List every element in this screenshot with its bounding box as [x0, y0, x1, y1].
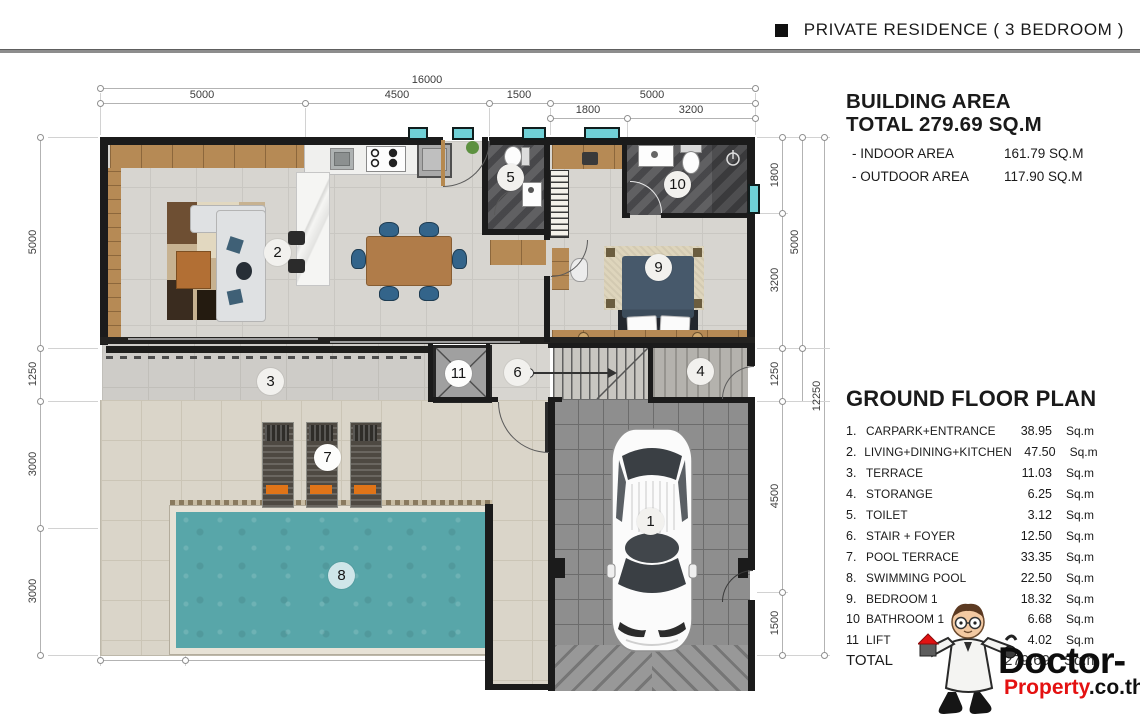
dim-tick: [182, 657, 189, 664]
dim-label: 5000: [27, 230, 39, 254]
dining-chair: [379, 286, 399, 301]
coffee-table: [176, 251, 211, 289]
stair-direction-arrowhead-icon: [608, 368, 617, 378]
entry-shoe-cabinet: [490, 240, 546, 265]
ext-line: [757, 137, 830, 138]
entry-plant-icon: [466, 141, 479, 154]
brand-wordmark-bottom: Property.co.th: [1004, 676, 1140, 700]
sliding-door-track-1: [128, 338, 318, 340]
room-badge-carpark: 1: [637, 508, 664, 535]
dining-chair: [379, 222, 399, 237]
dim-line: [40, 137, 41, 655]
room-badge-storage: 4: [687, 358, 714, 385]
bathroom-window-icon: [584, 127, 620, 140]
living-cabinet-row: [110, 143, 304, 168]
dim-tick: [302, 100, 309, 107]
dim-tick: [752, 115, 759, 122]
dim-tick: [821, 134, 828, 141]
bedroom-window-icon: [748, 184, 760, 214]
dim-line: [802, 137, 803, 401]
dim-tick: [37, 134, 44, 141]
room-badge-lift: 11: [445, 360, 472, 387]
legend-row: 4. STORANGE 6.25 Sq.m: [846, 484, 1106, 505]
dim-label: 12250: [811, 381, 823, 412]
dim-tick: [779, 652, 786, 659]
wall-storage-left: [648, 348, 653, 399]
legend-row: 3. TERRACE 11.03 Sq.m: [846, 463, 1106, 484]
dim-label: 1800: [769, 163, 781, 187]
ext-line: [48, 528, 98, 529]
dim-label: 1500: [769, 611, 781, 635]
corridor-window-icon: [522, 127, 546, 140]
sheet-title: PRIVATE RESIDENCE ( 3 BEDROOM ): [804, 20, 1124, 40]
bath-wc-icon: [682, 151, 700, 174]
building-area-title: BUILDING AREA: [846, 90, 1011, 114]
kitchen-sink-icon: [330, 148, 354, 170]
room-badge-toilet: 5: [497, 164, 524, 191]
dim-line: [824, 137, 825, 655]
wall-pool-right: [485, 504, 493, 688]
room-badge-bathroom: 10: [664, 171, 691, 198]
dim-tick: [37, 525, 44, 532]
dim-tick: [752, 85, 759, 92]
wall-left: [100, 137, 108, 345]
stair-direction-line: [530, 372, 610, 374]
corridor-stand: [582, 152, 598, 165]
dim-label: 3000: [27, 579, 39, 603]
room-badge-terrace: 3: [257, 368, 284, 395]
dim-tick: [486, 100, 493, 107]
indoor-area-row: - INDOOR AREA 161.79 SQ.M: [852, 146, 1140, 161]
ext-line: [489, 108, 490, 136]
dim-tick: [799, 134, 806, 141]
sheet-header: PRIVATE RESIDENCE ( 3 BEDROOM ): [775, 20, 1124, 40]
ground-floor-plan-title: GROUND FLOOR PLAN: [846, 386, 1096, 412]
dim-label: 3000: [27, 452, 39, 476]
dim-label: 1250: [27, 362, 39, 386]
ext-line: [305, 108, 306, 140]
terrace-planter: [106, 346, 432, 353]
ext-line: [627, 122, 628, 137]
ext-line: [48, 401, 98, 402]
room-badge-pool-terrace: 7: [314, 444, 341, 471]
legend-row: 5. TOILET 3.12 Sq.m: [846, 505, 1106, 526]
dining-table: [366, 236, 452, 286]
pilaster-left: [555, 558, 565, 578]
toilet-basin-icon: [522, 182, 542, 207]
dim-tick: [752, 100, 759, 107]
dining-chair: [351, 249, 366, 269]
dim-tick: [547, 100, 554, 107]
kitchen-window-2-icon: [452, 127, 474, 140]
dim-tick: [624, 115, 631, 122]
sliding-door-track-2: [330, 341, 520, 343]
wall-carpark-left: [548, 399, 555, 691]
dim-tick: [779, 345, 786, 352]
wall-corridor-left-upper: [544, 137, 550, 240]
foyer-exit-door-leaf: [545, 402, 548, 452]
bar-stool: [288, 259, 305, 273]
wall-under-lift: [428, 397, 498, 402]
outdoor-area-row: - OUTDOOR AREA 117.90 SQ.M: [852, 169, 1140, 184]
dining-chair: [452, 249, 467, 269]
dim-tick: [779, 589, 786, 596]
wardrobe-hatch: [550, 170, 569, 238]
wall-right-upper: [747, 137, 755, 366]
legend-row: 1. CARPARK+ENTRANCE 38.95 Sq.m: [846, 421, 1106, 442]
dim-tick: [779, 134, 786, 141]
legend-row: 2. LIVING+DINING+KITCHEN 47.50 Sq.m: [846, 442, 1106, 463]
building-area-total: TOTAL 279.69 SQ.M: [846, 113, 1042, 137]
room-badge-foyer: 6: [504, 359, 531, 386]
room-badge-living: 2: [264, 239, 291, 266]
header-bullet-icon: [775, 24, 788, 37]
wall-carpark-right-a: [748, 399, 755, 570]
sofa-cushion: [227, 289, 244, 306]
floor-plan-sheet: PRIVATE RESIDENCE ( 3 BEDROOM ) BUILDING…: [0, 0, 1140, 718]
wall-walkway-bottom: [485, 684, 555, 690]
car-top-view: [606, 426, 698, 654]
dim-tick: [37, 398, 44, 405]
dim-label: 4500: [385, 89, 409, 101]
dim-line: [550, 118, 755, 119]
dining-chair: [419, 286, 439, 301]
dim-tick: [821, 652, 828, 659]
dim-line: [100, 660, 490, 661]
bar-stool: [288, 231, 305, 245]
kitchen-window-1-icon: [408, 127, 428, 140]
wall-bathroom-bottom-b: [661, 213, 755, 218]
dim-label: 1500: [507, 89, 531, 101]
rug-corner: [693, 299, 702, 308]
dim-tick: [37, 652, 44, 659]
ext-line: [757, 655, 830, 656]
shower-drain-icon: [722, 148, 744, 170]
legend-row: 6. STAIR + FOYER 12.50 Sq.m: [846, 525, 1106, 546]
dim-label: 5000: [190, 89, 214, 101]
dim-label: 1250: [769, 362, 781, 386]
stair-run-line: [553, 348, 648, 399]
rug-corner: [693, 248, 702, 257]
wall-bathroom-left: [622, 137, 627, 218]
ext-line: [48, 137, 98, 138]
wall-toilet-bottom: [482, 229, 550, 235]
dim-tick: [779, 210, 786, 217]
dining-chair: [419, 222, 439, 237]
wall-carpark-right-b: [748, 600, 755, 691]
header-rule: [0, 49, 1140, 53]
dim-tick: [547, 115, 554, 122]
entry-door-leaf: [441, 140, 445, 186]
rug-corner: [606, 299, 615, 308]
doctor-property-logo: Doctor- Property.co.th: [918, 596, 1140, 718]
dim-label: 5000: [640, 89, 664, 101]
room-badge-pool: 8: [328, 562, 355, 589]
sofa-pillow: [236, 262, 252, 280]
dim-tick: [37, 345, 44, 352]
wall-storage-right-stub: [747, 345, 755, 366]
dim-label: 3200: [679, 104, 703, 116]
dim-label: 5000: [789, 230, 801, 254]
dim-tick: [779, 398, 786, 405]
dim-label: 16000: [412, 74, 443, 86]
wall-lift-left: [428, 341, 433, 400]
sun-lounger: [262, 422, 294, 508]
dim-label: 1800: [576, 104, 600, 116]
terrace-dash-line: [106, 356, 432, 359]
legend-row: 8. SWIMMING POOL 22.50 Sq.m: [846, 567, 1106, 588]
legend-row: 7. POOL TERRACE 33.35 Sq.m: [846, 546, 1106, 567]
living-side-deck: [106, 168, 121, 340]
wall-lift-right: [486, 341, 490, 400]
wall-top-left: [100, 137, 443, 145]
dim-tick: [97, 100, 104, 107]
ext-line: [48, 348, 98, 349]
stove-icon: [366, 146, 406, 172]
dim-label: 3200: [769, 268, 781, 292]
dim-tick: [97, 657, 104, 664]
ext-line: [48, 655, 98, 656]
bath-basin-icon: [638, 145, 674, 167]
sun-lounger: [350, 422, 382, 508]
toilet-wc-tank: [521, 147, 530, 166]
dim-line: [100, 103, 755, 104]
dim-label: 4500: [769, 484, 781, 508]
wall-corridor-left-lower: [544, 276, 550, 342]
dim-tick: [799, 345, 806, 352]
ext-line: [757, 348, 830, 349]
wall-bathroom-bottom-a: [622, 213, 630, 218]
room-badge-bedroom: 9: [645, 254, 672, 281]
dim-tick: [97, 85, 104, 92]
rug-corner: [606, 248, 615, 257]
